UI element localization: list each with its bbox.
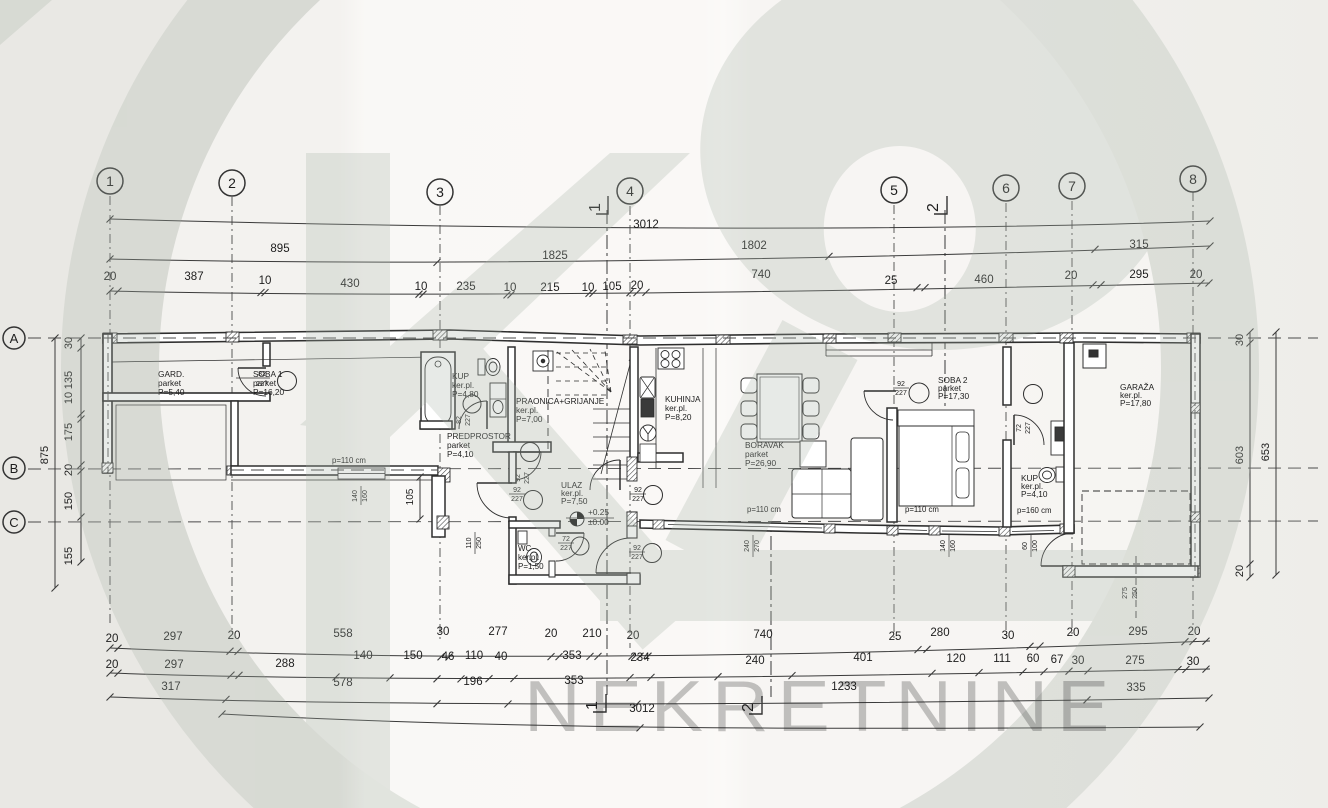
svg-text:875: 875 bbox=[39, 446, 51, 464]
svg-text:P=17,80: P=17,80 bbox=[1120, 398, 1152, 408]
svg-text:p=160 cm: p=160 cm bbox=[1017, 506, 1051, 515]
svg-text:353: 353 bbox=[562, 650, 581, 662]
svg-text:227: 227 bbox=[1025, 422, 1032, 434]
svg-text:30: 30 bbox=[437, 626, 450, 638]
svg-text:10: 10 bbox=[259, 275, 272, 287]
svg-text:105: 105 bbox=[602, 281, 621, 293]
svg-text:67: 67 bbox=[1051, 654, 1064, 666]
svg-text:155: 155 bbox=[63, 547, 75, 565]
svg-text:250: 250 bbox=[476, 537, 483, 549]
svg-text:105: 105 bbox=[405, 488, 416, 505]
svg-text:60: 60 bbox=[1027, 653, 1040, 665]
svg-text:C: C bbox=[9, 515, 18, 530]
svg-text:150: 150 bbox=[403, 650, 422, 662]
svg-text:ker.pl.: ker.pl. bbox=[518, 553, 539, 562]
svg-text:P=5,40: P=5,40 bbox=[158, 387, 185, 397]
svg-text:20: 20 bbox=[545, 628, 558, 640]
svg-text:A: A bbox=[10, 331, 19, 346]
svg-text:295: 295 bbox=[1129, 269, 1148, 281]
svg-text:234: 234 bbox=[630, 652, 650, 664]
svg-text:111: 111 bbox=[993, 653, 1010, 665]
svg-text:10: 10 bbox=[415, 281, 428, 293]
svg-text:25: 25 bbox=[885, 275, 898, 287]
svg-text:20: 20 bbox=[631, 280, 644, 292]
svg-text:210: 210 bbox=[582, 628, 601, 640]
svg-text:5: 5 bbox=[890, 182, 898, 198]
svg-text:P=1,50: P=1,50 bbox=[518, 562, 544, 571]
svg-text:92: 92 bbox=[897, 381, 905, 388]
svg-text:150: 150 bbox=[63, 492, 75, 510]
svg-text:227: 227 bbox=[632, 496, 644, 503]
svg-text:20: 20 bbox=[1067, 627, 1080, 639]
svg-text:196: 196 bbox=[463, 676, 482, 688]
svg-text:740: 740 bbox=[753, 629, 772, 641]
svg-text:653: 653 bbox=[1260, 443, 1272, 461]
svg-text:25: 25 bbox=[889, 631, 902, 643]
svg-text:288: 288 bbox=[275, 658, 294, 670]
svg-text:40: 40 bbox=[495, 651, 508, 663]
svg-text:46: 46 bbox=[442, 651, 455, 663]
svg-text:120: 120 bbox=[946, 653, 965, 665]
svg-text:895: 895 bbox=[270, 243, 289, 255]
svg-text:92: 92 bbox=[634, 487, 642, 494]
svg-text:WC: WC bbox=[518, 544, 532, 553]
svg-text:2: 2 bbox=[228, 175, 236, 191]
svg-text:NEKRETNINE: NEKRETNINE bbox=[524, 667, 1118, 747]
svg-text:P=17,30: P=17,30 bbox=[938, 391, 970, 401]
svg-text:280: 280 bbox=[930, 627, 949, 639]
svg-text:20: 20 bbox=[106, 659, 119, 671]
svg-text:387: 387 bbox=[184, 271, 203, 283]
svg-text:P=8,20: P=8,20 bbox=[665, 412, 692, 422]
svg-text:227: 227 bbox=[895, 390, 907, 397]
svg-text:277: 277 bbox=[488, 626, 507, 638]
svg-text:240: 240 bbox=[745, 655, 764, 667]
svg-text:110: 110 bbox=[465, 650, 483, 662]
svg-text:20: 20 bbox=[106, 633, 119, 645]
svg-text:30: 30 bbox=[1187, 656, 1200, 668]
svg-text:60: 60 bbox=[1022, 542, 1029, 550]
svg-text:401: 401 bbox=[853, 652, 872, 664]
svg-text:20: 20 bbox=[1234, 565, 1246, 577]
svg-text:P=4,10: P=4,10 bbox=[1021, 489, 1048, 499]
svg-text:30: 30 bbox=[1002, 630, 1015, 642]
svg-text:3: 3 bbox=[436, 184, 444, 200]
svg-text:110: 110 bbox=[466, 537, 473, 548]
svg-text:B: B bbox=[10, 461, 19, 476]
svg-text:10: 10 bbox=[582, 282, 595, 294]
svg-text:72: 72 bbox=[1016, 424, 1023, 432]
svg-text:3012: 3012 bbox=[633, 219, 659, 231]
svg-text:2: 2 bbox=[925, 203, 942, 212]
svg-text:P=16,20: P=16,20 bbox=[253, 387, 285, 397]
